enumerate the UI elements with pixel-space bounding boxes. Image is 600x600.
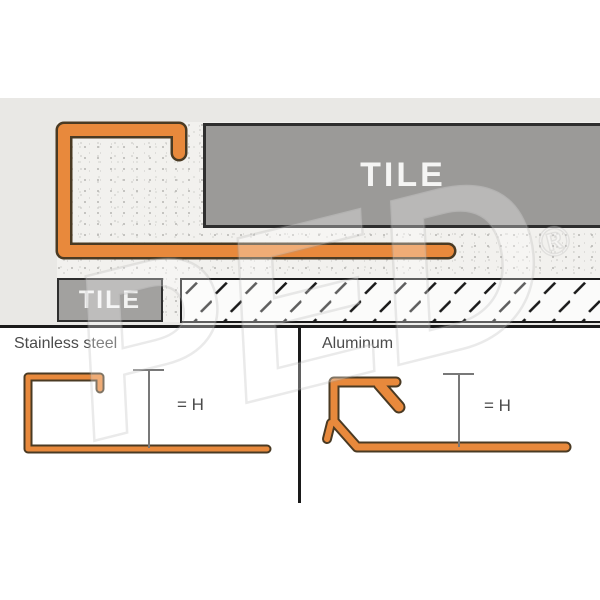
tile-side-label: TILE <box>79 286 141 315</box>
substrate-hatched-area <box>180 278 600 323</box>
height-dimension-cap-right <box>443 373 474 375</box>
tile-block-side: TILE <box>57 278 163 322</box>
stainless-steel-label: Stainless steel <box>14 335 117 353</box>
panel-divider-vertical <box>298 325 301 503</box>
height-dimension-line-right <box>458 374 460 447</box>
height-dimension-cap-left <box>133 369 164 371</box>
substrate-hatch-pattern <box>182 280 600 321</box>
height-label-right: = H <box>484 396 511 416</box>
tile-edge-profile-diagram: TILE TILE Stainless steel Aluminum = H = <box>0 0 600 600</box>
aluminum-label: Aluminum <box>322 335 393 353</box>
height-dimension-line-left <box>148 370 150 448</box>
tile-block-top: TILE <box>203 123 600 228</box>
aluminum-profile-drawing <box>327 382 566 447</box>
tile-top-label: TILE <box>360 156 446 195</box>
height-label-left: = H <box>177 395 204 415</box>
